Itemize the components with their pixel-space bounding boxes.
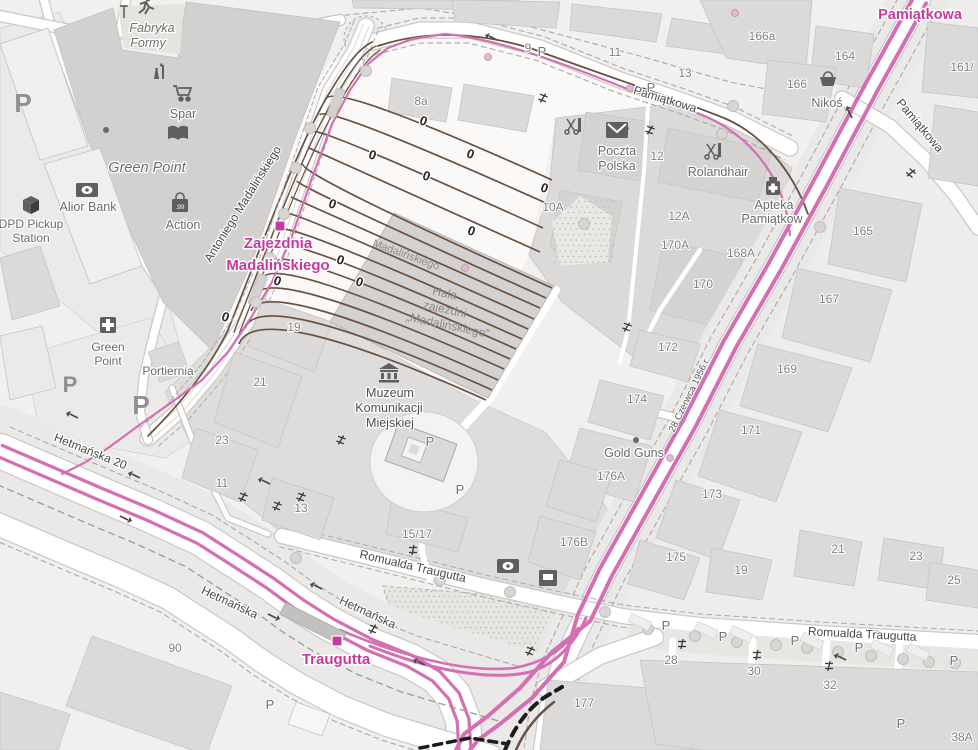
svg-text:172: 172: [658, 340, 678, 354]
svg-text:38A: 38A: [951, 730, 972, 744]
svg-text:Action: Action: [166, 218, 201, 232]
svg-text:90: 90: [168, 641, 182, 655]
svg-text:Portiernia: Portiernia: [142, 364, 194, 378]
svg-text:P: P: [662, 618, 671, 633]
svg-text:32: 32: [823, 678, 837, 692]
svg-text:169: 169: [777, 362, 797, 376]
svg-text:P: P: [456, 482, 465, 497]
svg-text:Pamiątkow: Pamiątkow: [741, 212, 803, 226]
svg-text:30: 30: [747, 664, 761, 678]
svg-text:12A: 12A: [668, 209, 689, 223]
svg-text:Miejskiej: Miejskiej: [366, 416, 414, 430]
svg-text:168A: 168A: [727, 246, 755, 260]
svg-text:P: P: [855, 640, 864, 655]
svg-text:Apteka: Apteka: [755, 198, 794, 212]
svg-text:13: 13: [678, 66, 692, 80]
svg-text:Komunikacji: Komunikacji: [355, 401, 422, 415]
svg-text:8a: 8a: [414, 94, 428, 108]
svg-text:Traugutta: Traugutta: [302, 651, 371, 668]
svg-text:170A: 170A: [661, 238, 689, 252]
svg-text:P: P: [791, 633, 800, 648]
svg-text:Fabryka: Fabryka: [129, 21, 174, 35]
svg-text:9: 9: [525, 41, 532, 55]
svg-text:176A: 176A: [597, 469, 625, 483]
svg-text:161/: 161/: [950, 60, 974, 74]
svg-text:11: 11: [216, 476, 229, 490]
svg-text:P: P: [719, 629, 728, 644]
svg-text:Nikoś: Nikoś: [811, 96, 842, 110]
svg-text:.99: .99: [175, 204, 184, 211]
svg-text:P: P: [426, 434, 435, 449]
svg-text:10A: 10A: [542, 200, 563, 214]
svg-text:Poczta: Poczta: [598, 144, 636, 158]
svg-text:P: P: [538, 44, 547, 59]
svg-text:Pamiątkowa: Pamiątkowa: [878, 7, 963, 23]
svg-text:Green Point: Green Point: [108, 160, 186, 176]
svg-text:167: 167: [819, 292, 839, 306]
svg-text:Rolandhair: Rolandhair: [688, 165, 748, 179]
svg-text:12: 12: [650, 149, 664, 163]
svg-text:Spar: Spar: [170, 107, 196, 121]
svg-text:P: P: [897, 716, 906, 731]
svg-text:P: P: [950, 653, 959, 668]
svg-text:21: 21: [253, 375, 267, 389]
svg-text:Muzeum: Muzeum: [366, 386, 414, 400]
svg-text:P: P: [63, 372, 78, 397]
svg-text:175: 175: [666, 550, 686, 564]
svg-text:Alior Bank: Alior Bank: [60, 200, 118, 214]
svg-text:23: 23: [909, 549, 923, 563]
svg-text:P: P: [647, 80, 656, 95]
svg-text:15/17: 15/17: [402, 527, 432, 541]
svg-text:177: 177: [574, 696, 594, 710]
svg-text:Gold Guns: Gold Guns: [604, 446, 664, 460]
svg-text:Zajezdnia: Zajezdnia: [244, 235, 313, 252]
svg-text:Station: Station: [12, 231, 49, 245]
svg-text:Point: Point: [94, 354, 122, 368]
svg-text:19: 19: [734, 563, 748, 577]
svg-text:174: 174: [627, 392, 647, 406]
svg-text:Green: Green: [91, 340, 124, 354]
svg-text:Polska: Polska: [598, 159, 636, 173]
svg-text:Formy: Formy: [130, 36, 166, 50]
svg-text:170: 170: [693, 277, 713, 291]
svg-text:P: P: [266, 697, 275, 712]
svg-text:P: P: [132, 390, 149, 420]
svg-text:Madalińskiego: Madalińskiego: [226, 257, 329, 274]
svg-text:164: 164: [835, 49, 855, 63]
svg-text:166a: 166a: [749, 29, 776, 43]
svg-text:13: 13: [294, 501, 308, 515]
svg-text:173: 173: [702, 487, 722, 501]
svg-text:P: P: [14, 88, 31, 118]
svg-text:165: 165: [853, 224, 873, 238]
svg-text:166: 166: [787, 77, 807, 91]
svg-text:28: 28: [664, 653, 678, 667]
svg-text:171: 171: [741, 423, 761, 437]
svg-text:DPD Pickup: DPD Pickup: [0, 217, 64, 231]
svg-text:11: 11: [609, 45, 622, 59]
svg-text:19: 19: [287, 320, 301, 334]
svg-text:21: 21: [831, 542, 845, 556]
svg-text:23: 23: [215, 433, 229, 447]
svg-text:25: 25: [947, 573, 961, 587]
svg-text:176B: 176B: [560, 535, 588, 549]
